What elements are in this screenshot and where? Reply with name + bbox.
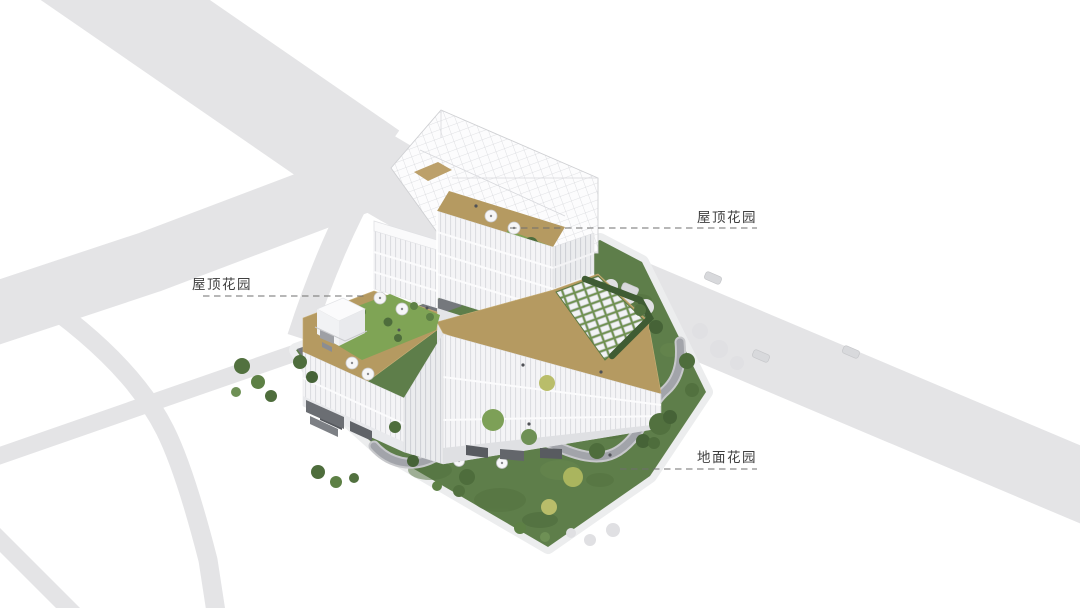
tree-icon (563, 467, 583, 487)
road-narrow-shallow (0, 352, 298, 466)
road-narrow-stub (0, 510, 95, 608)
site-rendering: 屋顶花园 屋顶花园 地面花园 (0, 0, 1080, 608)
tree-icon (663, 410, 677, 424)
tree-icon (521, 429, 537, 445)
tree-icon (589, 443, 605, 459)
tree-icon (649, 320, 663, 334)
tree-icon (293, 355, 307, 369)
tree-icon (679, 353, 695, 369)
person-dot (608, 453, 611, 456)
tree-icon (389, 421, 401, 433)
person-dot (398, 329, 401, 332)
person-dot (599, 370, 602, 373)
tree-icon (636, 434, 650, 448)
label-roof-garden-tower: 屋顶花园 (697, 210, 757, 225)
road-narrow-steep (30, 292, 218, 608)
tree-icon (311, 465, 325, 479)
tree-icon (330, 476, 342, 488)
podium-left-wing (303, 291, 443, 464)
label-ground-garden: 地面花园 (697, 450, 757, 465)
road-main-upper (60, 0, 372, 170)
tree-icon (251, 375, 265, 389)
person-dot (521, 363, 524, 366)
tree-icon (453, 485, 465, 497)
tree-icon (459, 469, 475, 485)
tree-icon (482, 409, 504, 431)
tree-icon (234, 358, 250, 374)
tree-icon (539, 375, 555, 391)
tree-icon (514, 522, 526, 534)
person-dot (527, 422, 530, 425)
tree-icon (432, 481, 442, 491)
label-roof-garden-podium: 屋顶花园 (192, 277, 252, 292)
tree-icon (349, 473, 359, 483)
tree-icon (231, 387, 241, 397)
tree-icon (541, 499, 557, 515)
rendering-canvas: 屋顶花园 屋顶花园 地面花园 (0, 0, 1080, 608)
tree-icon (685, 383, 699, 397)
person-dot (474, 204, 477, 207)
tree-icon (306, 371, 318, 383)
person-dot (426, 307, 429, 310)
tree-icon (407, 455, 419, 467)
tree-icon (540, 532, 550, 542)
tree-icon (648, 437, 660, 449)
tree-icon (265, 390, 277, 402)
tree-icon (634, 304, 646, 316)
car-icon (704, 271, 723, 285)
